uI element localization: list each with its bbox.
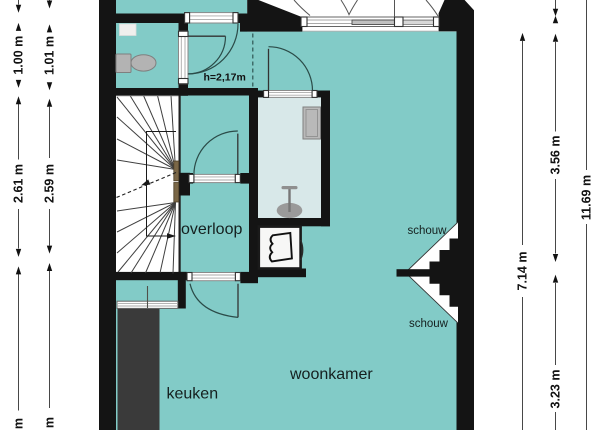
svg-text:keuken: keuken xyxy=(167,386,219,403)
svg-text:woonkamer: woonkamer xyxy=(289,366,373,383)
svg-text:11.69 m: 11.69 m xyxy=(580,175,594,220)
svg-text:h=2,17m: h=2,17m xyxy=(204,72,246,84)
svg-text:schouw: schouw xyxy=(408,225,448,237)
svg-text:1.00 m: 1.00 m xyxy=(12,36,26,75)
svg-text:3.56 m: 3.56 m xyxy=(549,136,563,175)
svg-text:7.14 m: 7.14 m xyxy=(516,252,530,291)
svg-text:2.59 m: 2.59 m xyxy=(43,164,57,203)
svg-text:2.97 m: 2.97 m xyxy=(12,418,26,430)
svg-text:overloop: overloop xyxy=(181,221,242,238)
svg-text:1.01 m: 1.01 m xyxy=(43,36,57,75)
svg-text:2.61 m: 2.61 m xyxy=(12,164,26,203)
svg-text:3.05 m: 3.05 m xyxy=(43,417,57,430)
svg-text:schouw: schouw xyxy=(409,318,449,330)
svg-text:3.23 m: 3.23 m xyxy=(549,370,563,409)
